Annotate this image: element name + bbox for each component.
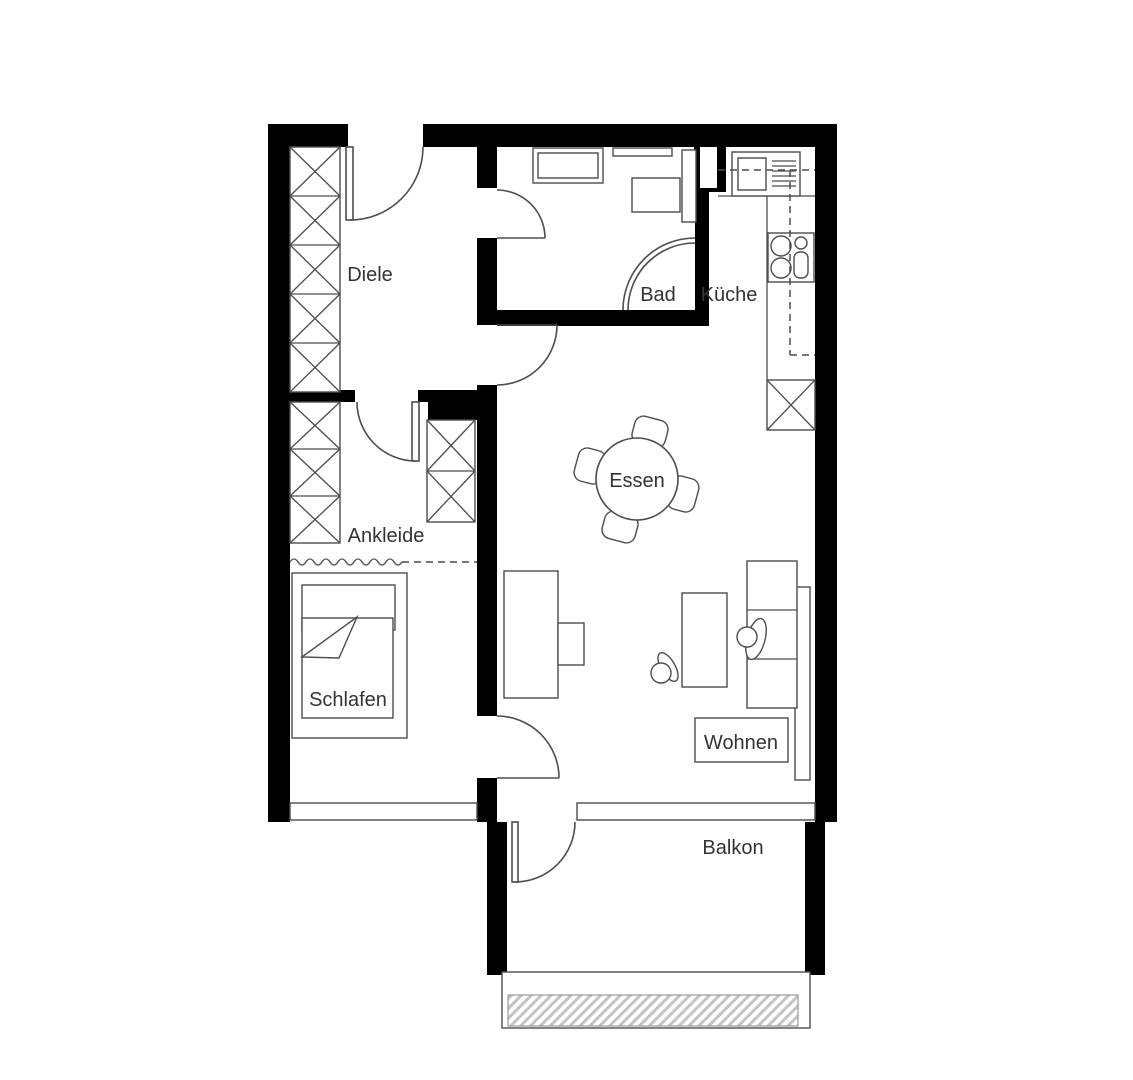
- bedroom-furniture: [290, 559, 477, 738]
- shelf-mirror: [613, 148, 672, 156]
- windows: [290, 803, 815, 820]
- wall-balcony-left: [487, 822, 507, 975]
- label-wohnen: Wohnen: [704, 732, 778, 754]
- curtain-line: [290, 559, 402, 565]
- label-balkon: Balkon: [702, 837, 763, 859]
- wall-balcony-right: [805, 822, 825, 975]
- label-essen: Essen: [609, 470, 665, 492]
- person-on-floor: [651, 650, 682, 685]
- balcony-door: [512, 822, 575, 882]
- ankleide-wardrobe-right: [427, 420, 475, 522]
- diele-door: [497, 325, 557, 385]
- ankleide-door-swing: [357, 402, 416, 461]
- balcony-door-leaf: [512, 822, 518, 882]
- toilet: [632, 178, 680, 212]
- coffee-table: [682, 593, 727, 687]
- window-wohnen: [577, 803, 815, 820]
- opening-entrance: [348, 124, 423, 147]
- tv-cabinet: [504, 571, 558, 698]
- opening-ankleide: [355, 390, 418, 402]
- shaft-interior: [700, 147, 717, 188]
- label-schlafen: Schlafen: [309, 689, 387, 711]
- floor-plan-svg: Diele Bad Küche Essen Ankleide Schlafen …: [0, 0, 1133, 1080]
- diele-wardrobe: [290, 147, 340, 392]
- ankleide-door-leaf: [412, 402, 419, 461]
- balcony-door-swing: [515, 822, 575, 882]
- bad-door-swing: [497, 190, 545, 238]
- wardrobes: [290, 147, 475, 543]
- opening-bad: [477, 188, 497, 238]
- diele-door-swing: [497, 325, 557, 385]
- kitchen-tall-cabinet: [767, 380, 815, 430]
- wall-right: [815, 124, 837, 822]
- washbasin: [533, 148, 603, 183]
- label-ankleide: Ankleide: [348, 525, 425, 547]
- wall-bad-south: [497, 310, 709, 326]
- balcony-planter-hatch: [508, 995, 798, 1026]
- opening-diele: [477, 325, 497, 385]
- entrance-door-leaf: [346, 147, 353, 220]
- tv: [558, 623, 584, 665]
- entrance-door: [346, 147, 423, 220]
- wall-niche: [428, 402, 477, 420]
- stove-cooktop: [768, 233, 814, 282]
- label-bad: Bad: [640, 284, 676, 306]
- floor-plan-page: Diele Bad Küche Essen Ankleide Schlafen …: [0, 0, 1133, 1080]
- ankleide-door: [357, 402, 419, 461]
- wall-left: [268, 124, 290, 822]
- ankleide-wardrobe-left: [290, 402, 340, 543]
- label-kueche: Küche: [701, 284, 758, 306]
- opening-schlafen: [477, 716, 497, 778]
- window-schlafen: [290, 803, 477, 820]
- bed: [292, 573, 407, 738]
- entrance-door-swing: [350, 147, 423, 220]
- schlafen-door-swing: [497, 716, 559, 778]
- bath-duct: [682, 150, 696, 222]
- label-diele: Diele: [347, 264, 393, 286]
- balcony: [502, 972, 810, 1028]
- bad-door: [497, 190, 545, 238]
- schlafen-door: [497, 716, 559, 778]
- room-labels: Diele Bad Küche Essen Ankleide Schlafen …: [309, 264, 778, 859]
